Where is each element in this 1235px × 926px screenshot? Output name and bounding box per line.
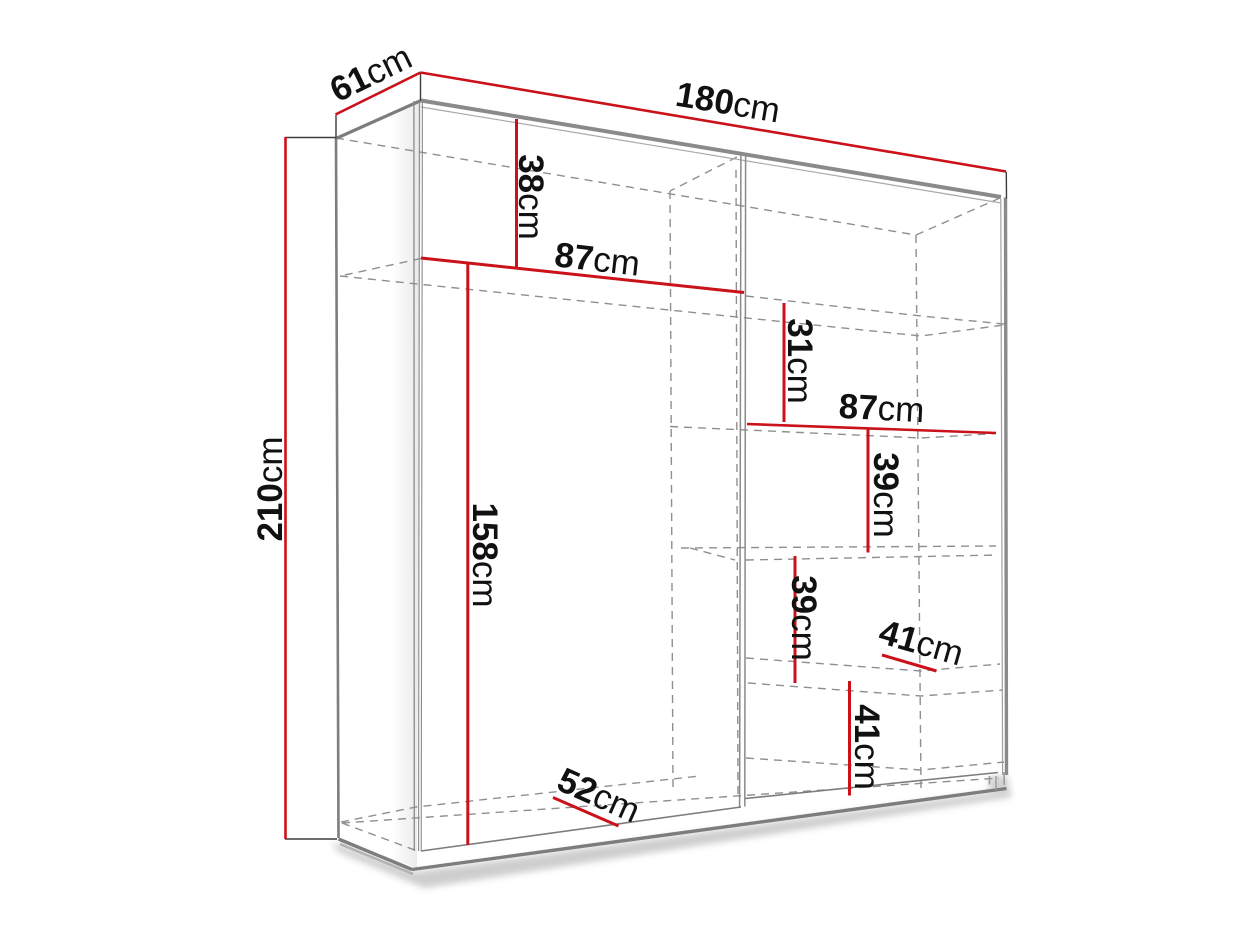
svg-text:87cm: 87cm (553, 235, 642, 283)
svg-text:180cm: 180cm (673, 75, 783, 131)
svg-text:39cm: 39cm (784, 575, 823, 661)
svg-text:158cm: 158cm (465, 502, 504, 607)
svg-text:41cm: 41cm (875, 612, 968, 673)
svg-text:39cm: 39cm (866, 452, 905, 538)
svg-text:38cm: 38cm (511, 154, 550, 240)
svg-text:87cm: 87cm (838, 387, 926, 430)
svg-text:31cm: 31cm (780, 318, 819, 404)
svg-text:52cm: 52cm (552, 760, 646, 830)
svg-text:61cm: 61cm (324, 37, 418, 110)
svg-text:210cm: 210cm (251, 436, 290, 541)
svg-text:41cm: 41cm (847, 704, 886, 790)
